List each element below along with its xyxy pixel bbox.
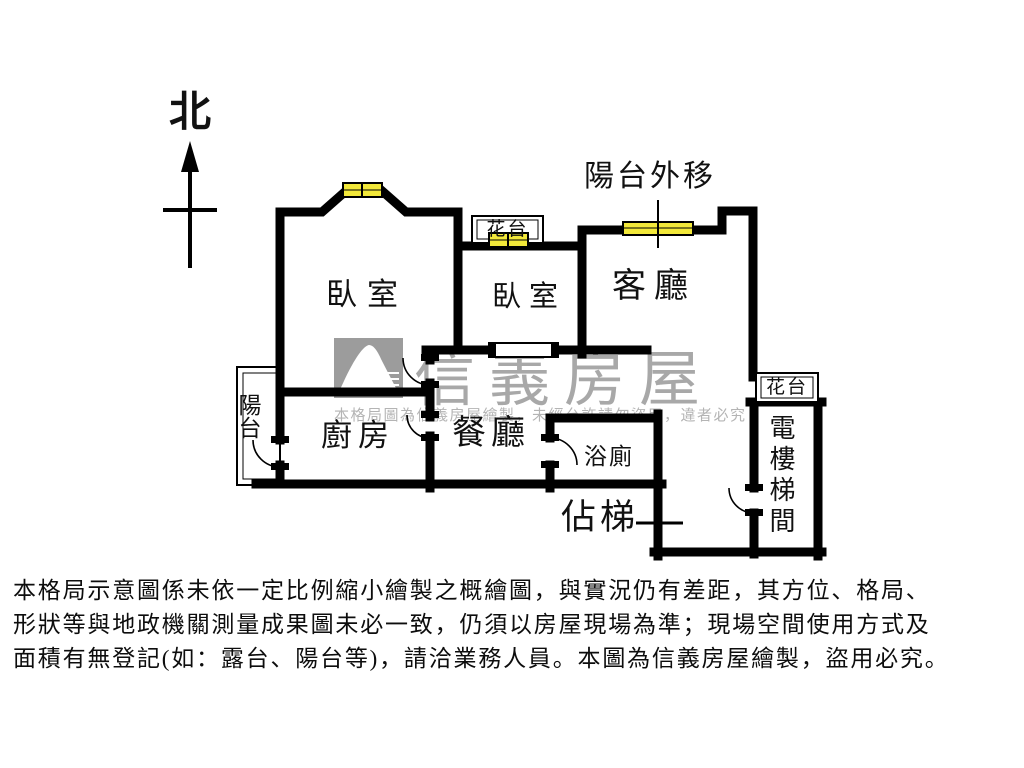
- annotation-stair-occupied: 佔梯: [561, 500, 639, 535]
- room-label-elevator-stairwell: 電樓梯間: [767, 414, 793, 546]
- label-flower-bed-right: 花台: [756, 373, 818, 402]
- north-arrow-icon: [163, 141, 217, 268]
- label-flower-bed-top: 花台: [472, 216, 543, 243]
- room-label-bathroom: 浴廁: [584, 445, 634, 468]
- room-label-bedroom2: 臥室: [492, 283, 566, 312]
- room-label-balcony: 陽台: [236, 393, 259, 473]
- north-label: 北: [169, 92, 211, 134]
- sliding-door-symbol: [488, 342, 559, 358]
- room-label-living-room: 客廳: [612, 270, 696, 304]
- disclaimer-text: 本格局示意圖係未依一定比例縮小繪製之概繪圖，與實況仍有差距，其方位、格局、 形狀…: [13, 574, 1015, 676]
- disclaimer-line-1: 本格局示意圖係未依一定比例縮小繪製之概繪圖，與實況仍有差距，其方位、格局、: [13, 574, 1015, 608]
- disclaimer-line-3: 面積有無登記(如：露台、陽台等)，請洽業務人員。本圖為信義房屋繪製，盜用必究。: [13, 642, 1015, 676]
- room-label-dining-room: 餐廳: [452, 417, 530, 451]
- room-label-bedroom1: 臥室: [326, 279, 408, 310]
- floorplan-page: 信義房屋 本格局圖為信義房屋繪製，未經允許請勿盜用，違者必究: [0, 0, 1024, 768]
- room-label-kitchen: 廚房: [321, 420, 395, 451]
- annotation-balcony-moved-out: 陽台外移: [584, 162, 716, 192]
- disclaimer-line-2: 形狀等與地政機關測量成果圖未必一致，仍須以房屋現場為準；現場空間使用方式及: [13, 608, 1015, 642]
